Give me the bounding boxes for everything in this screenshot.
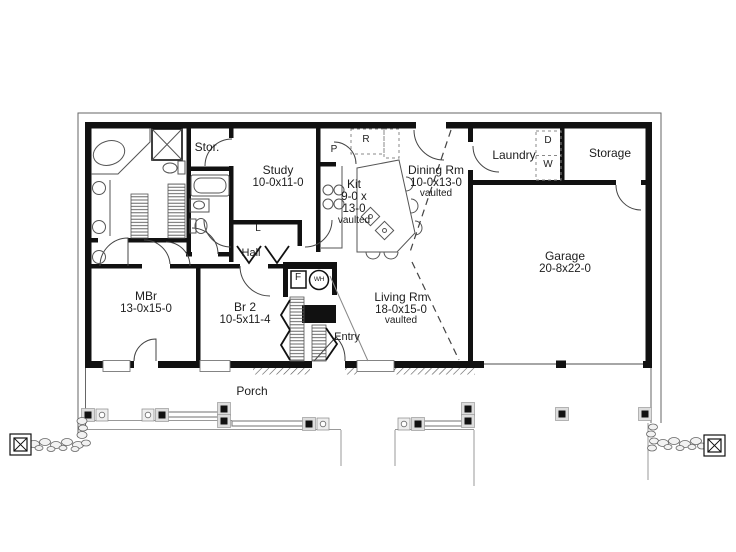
sink — [375, 221, 393, 239]
br2-closet-bifold — [281, 300, 290, 360]
mbr-door — [144, 240, 170, 264]
stools — [366, 252, 398, 259]
sink — [93, 182, 106, 195]
label-hall: Hall — [242, 248, 261, 260]
floor-plan: Stor. Study 10-0x11-0 Kit 9-0 x 13-0 vau… — [0, 0, 736, 552]
label-porch: Porch — [236, 385, 267, 398]
burner — [323, 185, 333, 195]
storage-room-door — [616, 185, 641, 210]
black-posts — [82, 403, 652, 431]
label-study: Study 10-0x11-0 — [253, 164, 304, 189]
burner — [323, 199, 333, 209]
label-br2: Br 2 10-5x11-4 — [220, 301, 271, 326]
toilet — [163, 163, 177, 173]
label-garage: Garage 20-8x22-0 — [539, 250, 591, 275]
dining-rear-door — [414, 130, 444, 160]
marker-furnace: F — [295, 273, 301, 284]
exterior-walls — [85, 122, 652, 368]
marker-refrigerator: R — [362, 135, 369, 146]
marker-water-heater: WH — [314, 276, 324, 283]
shower-x — [152, 129, 182, 160]
oven-outline — [384, 129, 399, 158]
tub — [90, 137, 128, 170]
porch-posts — [82, 403, 652, 431]
marker-pantry: P — [331, 145, 338, 156]
floor-plan-drawing — [0, 0, 736, 552]
sink — [93, 221, 106, 234]
label-laundry: Laundry — [492, 149, 535, 162]
label-living: Living Rm 18-0x15-0 vaulted — [374, 291, 427, 327]
label-storage: Storage — [589, 147, 631, 160]
mbr-patio-door — [134, 339, 156, 361]
porch-railing — [85, 412, 648, 486]
white-posts — [96, 409, 410, 430]
landscape-posts — [10, 434, 725, 456]
hall-bath-fixtures — [190, 175, 229, 234]
sink — [93, 251, 106, 264]
berm-stones — [29, 418, 707, 452]
label-dining: Dining Rm 10-0x13-0 vaulted — [408, 164, 464, 200]
marker-washer: W — [543, 160, 552, 171]
sink — [194, 201, 205, 209]
kitchen-fixtures — [321, 160, 422, 259]
label-mbr: MBr 13-0x15-0 — [120, 290, 172, 315]
toilet — [195, 219, 207, 234]
study-door — [204, 220, 231, 247]
label-kitchen: Kit 9-0 x 13-0 vaulted — [338, 178, 370, 227]
marker-dryer: D — [544, 136, 551, 147]
label-stor: Stor. — [195, 141, 220, 154]
interior-walls — [85, 128, 652, 368]
br2-door — [240, 266, 270, 296]
label-entry: Entry — [334, 332, 360, 344]
garage-door — [484, 361, 643, 369]
marker-linen: L — [255, 224, 261, 235]
doors — [100, 130, 641, 361]
master-bath-door — [100, 238, 128, 266]
